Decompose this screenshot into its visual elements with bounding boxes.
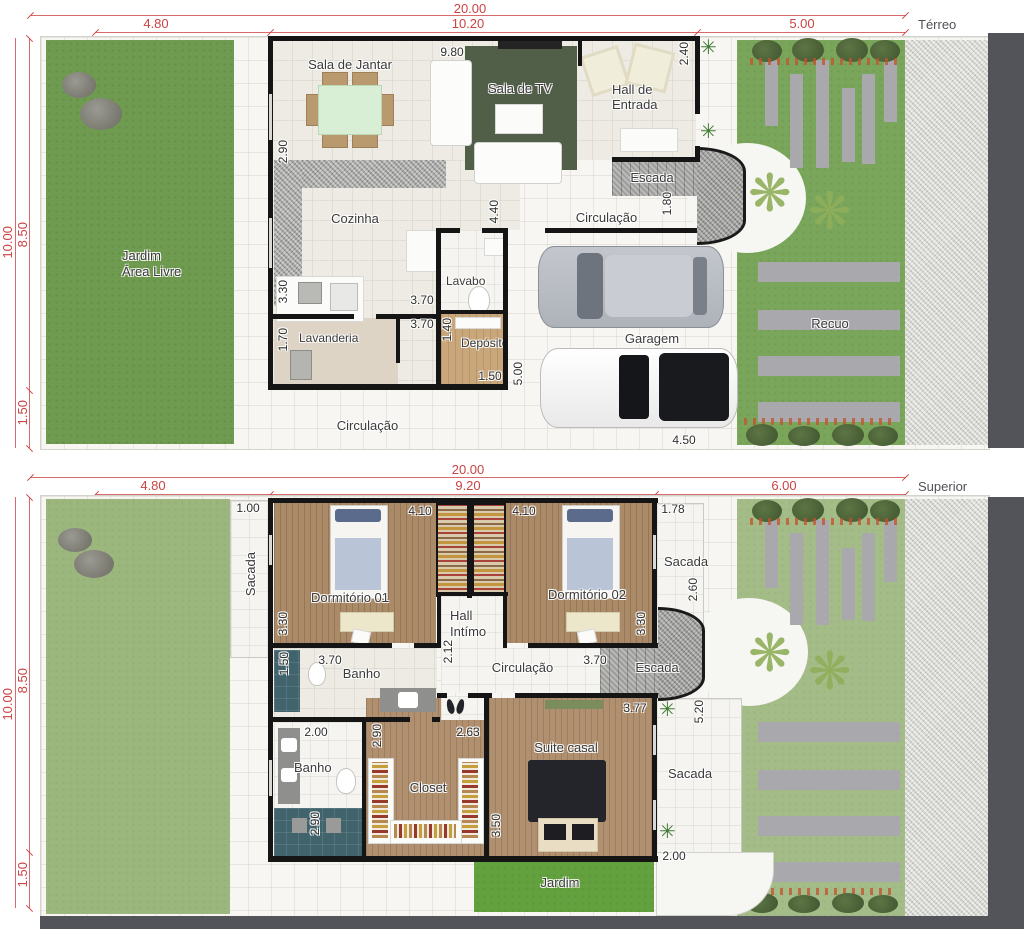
room-label: Sacada [660,766,720,781]
wardrobe [436,503,470,597]
shelf [455,317,501,329]
dim: 1.00 [226,502,270,514]
dim-line [29,497,30,908]
car-suv [538,246,724,328]
dim: 4.10 [398,505,442,517]
wall [268,36,273,390]
dim: 2.63 [446,726,490,738]
palm-icon: ✳ [659,700,676,720]
dim-side-total: 10.00 [1,226,14,259]
pillow [567,509,613,522]
paver [765,60,778,126]
dim: 4.40 [488,200,500,223]
room-label: Entrada [612,97,658,112]
room-label: Sala de TV [478,81,562,96]
dim-total: 20.00 [445,2,495,15]
flower-bed [750,58,900,65]
stove [330,283,358,311]
cushion [544,824,566,840]
room-label: Sacada [656,554,716,569]
vanity [380,688,436,712]
wall [441,310,503,314]
flower-bed [750,518,900,525]
dim-seg-left: 4.80 [128,479,178,492]
dim-tick [902,29,909,36]
paver [758,770,900,790]
stair-curve [658,607,705,701]
dim: 2.90 [309,812,321,835]
wall [503,228,508,390]
garden-area-livre [46,40,234,444]
paver [758,862,900,882]
bush [746,424,778,446]
dim: 5.00 [512,362,524,385]
bush [868,895,898,913]
room-label: Dormitório 02 [541,587,633,602]
street-edge [988,33,1024,448]
paver [758,816,900,836]
wall [545,228,697,233]
wall [467,498,472,598]
wall [652,498,657,648]
dim: 2.12 [442,640,454,663]
dim-tick [902,12,909,19]
wall [695,36,700,114]
room-label: Banho [294,760,346,775]
dim: 2.90 [371,724,383,747]
paver [758,262,900,282]
bush [832,424,864,446]
street-edge [988,497,1024,929]
palm-icon: ❋ [808,646,852,698]
clothes [372,762,388,838]
wall [515,693,658,698]
room-label: Lavabo [446,274,502,289]
washer [290,350,312,380]
wall [432,717,440,722]
dim: 3.50 [490,814,502,837]
gravel-strip [905,499,988,916]
car-windshield [577,253,603,319]
dim-side-upper: 8.50 [16,668,29,693]
sink [298,282,322,304]
paver [790,74,803,168]
room-label: Depósito [461,336,523,351]
wall [437,693,447,698]
car-roof [605,255,693,317]
wall [612,157,700,162]
wall [268,384,508,390]
sink [281,738,297,752]
bush [788,895,820,913]
wall [528,643,658,648]
sidewalk-bottom [40,916,1024,929]
paver [816,60,829,168]
room-label: Garagem [618,331,686,346]
lavabo-sink [484,238,504,256]
dim: 2.60 [687,578,699,601]
wall [268,717,410,722]
dim: 1.50 [470,370,510,382]
wall [362,720,366,858]
gravel-strip [905,40,988,445]
dim: 1.80 [661,192,673,215]
dim: 2.00 [652,850,696,862]
dim: 3.30 [277,280,289,303]
paver [862,74,875,164]
window [653,800,656,830]
wall [578,36,582,66]
dim: 1.40 [441,318,453,341]
room-label: Sacada [243,552,258,596]
room-label: Sala de Jantar [304,57,396,72]
paver [842,88,855,162]
dim: 3.70 [308,654,352,666]
room-label: Escada [622,170,682,185]
dim-line [95,32,906,33]
wall [268,36,700,41]
wall [268,314,354,319]
wall [652,693,657,858]
palm-icon: ❋ [748,628,792,680]
pillow [335,509,381,522]
coffee-table [495,104,543,134]
rock [58,528,92,552]
closet-shelf [390,820,462,844]
desk [340,612,394,632]
bush [868,426,898,446]
room-label: Jardim [524,875,596,890]
room-label: Hall [450,608,472,623]
dim-line [15,497,16,908]
bush [788,426,820,446]
chair [352,133,378,148]
garden-label: Jardim [122,248,161,263]
clothes [394,824,456,838]
window [269,218,272,268]
dim: 5.20 [693,700,705,723]
palm-icon: ✳ [700,38,717,58]
dim-seg-mid: 9.20 [443,479,493,492]
window [653,725,656,755]
paver [790,533,803,625]
floor-title-terreo: Térreo [918,17,956,32]
dim: 4.10 [502,505,546,517]
bush [832,893,864,913]
room-label: Dormitório 01 [305,590,395,605]
dim-side-lower: 1.50 [16,862,29,887]
rock [80,98,122,130]
tv-unit [498,41,562,49]
paver [884,60,897,122]
dim-seg-right: 5.00 [777,17,827,30]
dim: 2.00 [296,726,336,738]
dim: 2.40 [678,42,690,65]
room-label: Circulação [325,418,410,433]
rock [62,72,96,98]
dim: 1.70 [277,328,289,351]
dim: 2.90 [277,140,289,163]
dim: 3.30 [277,612,289,635]
dim-seg-right: 6.00 [759,479,809,492]
wall [268,643,392,648]
window [269,94,272,140]
garden-label: Área Livre [122,264,181,279]
room-label: Banho [334,666,389,681]
dim-side-lower: 1.50 [16,400,29,425]
paver [816,520,829,625]
wall [268,498,658,503]
car-sedan [540,348,738,428]
car-rear-glass [693,257,707,315]
palm-icon: ❋ [748,168,792,220]
window [269,535,272,565]
window [269,760,272,796]
car-windshield [619,355,649,419]
stool [326,818,341,833]
wall [268,856,658,862]
dim: 1.78 [650,503,696,515]
dim: 3.70 [400,294,444,306]
paver [862,533,875,621]
blanket [567,538,613,590]
paver [842,548,855,620]
stool [292,818,307,833]
palm-icon: ✳ [700,122,717,142]
palm-icon: ❋ [808,186,852,238]
room-label: Lavanderia [299,331,379,346]
chair [380,94,394,126]
floor-plan-canvas: 20.00 4.80 10.20 5.00 Térreo 10.00 8.50 … [0,0,1024,929]
room-label: Intímo [450,624,486,639]
car-roof [659,353,729,421]
paver [884,520,897,582]
floor-title-superior: Superior [918,479,967,494]
dim-seg-mid: 10.20 [443,17,493,30]
room-label: Circulação [480,660,565,675]
stair-curve [697,147,746,245]
room-label: Escada [626,660,688,675]
sofa [474,142,562,184]
room-label: Hall de [612,82,652,97]
wall [436,592,508,596]
room-label: Closet [402,780,454,795]
wardrobe [472,503,506,597]
dim: 3.70 [400,318,444,330]
dim-total: 20.00 [443,463,493,476]
dim: 3.30 [635,612,647,635]
bed [562,505,620,599]
dim: 4.50 [662,434,706,446]
dim-side-total: 10.00 [1,688,14,721]
dim-tick [902,474,909,481]
dim: 3.77 [613,702,657,714]
rock [74,550,114,578]
paver [758,356,900,376]
dining-table [318,85,382,135]
dim-side-upper: 8.50 [16,222,29,247]
clothes [462,762,478,838]
wall [503,596,507,648]
room-label: Suite casal [525,740,607,755]
dim-seg-left: 4.80 [131,17,181,30]
suite-bed [528,760,606,822]
bed [330,505,388,599]
bench [545,700,603,709]
palm-icon: ✳ [659,822,676,842]
chair [322,133,348,148]
blanket [335,538,381,590]
cushion [572,824,594,840]
room-label: Cozinha [324,211,386,226]
sofa [430,60,472,146]
paver [758,722,900,742]
hall-bench [620,128,678,152]
kitchen-cabinet [406,230,440,272]
recuo-label: Recuo [800,316,860,331]
sink [398,692,418,708]
dim: 9.80 [430,46,474,58]
dim: 1.50 [278,652,290,675]
dim: 3.70 [573,654,617,666]
wall [436,228,441,390]
paver [765,520,778,588]
room-label: Circulação [564,210,649,225]
